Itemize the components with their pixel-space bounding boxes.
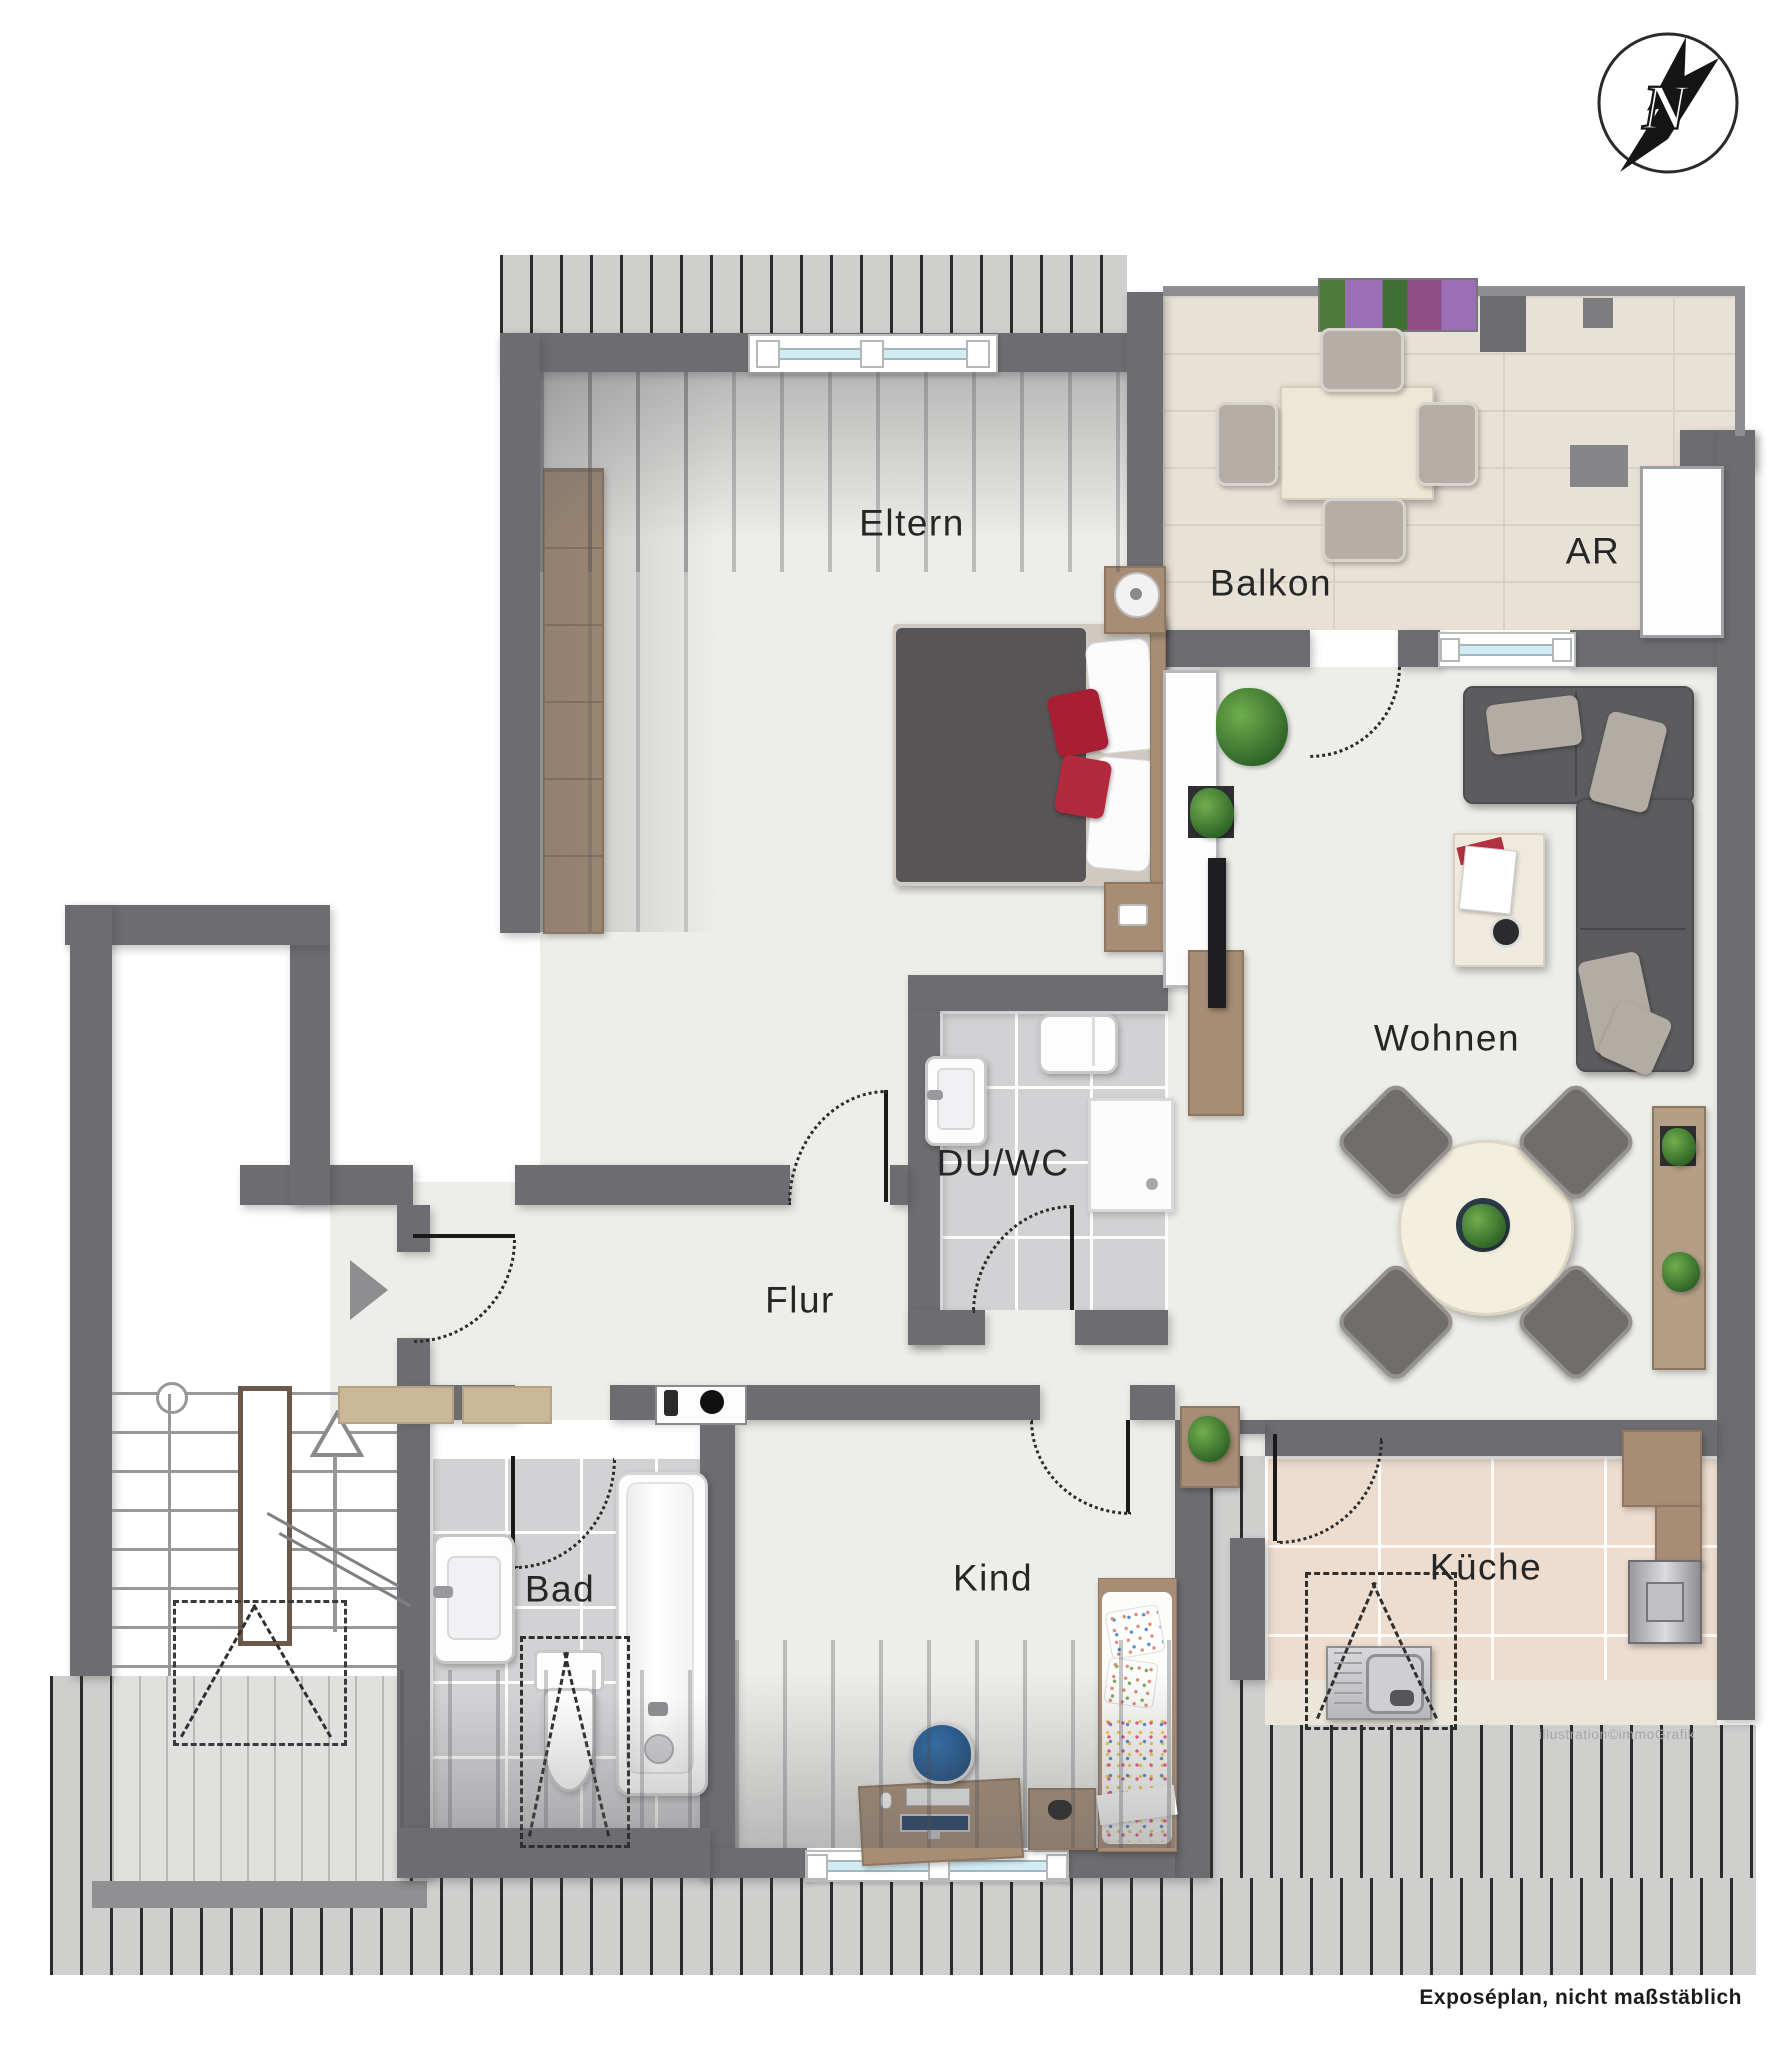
nightstand-phone [1118,904,1148,926]
wall-flur-top-b [515,1165,790,1205]
eltern-window-mullion-1 [756,340,780,368]
stairs-handrail-post [156,1382,188,1414]
bad-toilet-dashed-zone [520,1636,630,1848]
plan-disclaimer: Exposéplan, nicht maßstäblich [1419,1986,1742,2010]
coffee-table-cup [1490,916,1522,948]
label-wohnen: Wohnen [1374,1020,1520,1057]
balcony-pillar [1480,296,1526,352]
kind-nightstand-lamp [1048,1800,1072,1820]
wall-balcony-bottom-b [1398,630,1440,667]
wohnen-window-mullion-2 [1552,638,1572,662]
kind-desk-mouse [880,1792,892,1809]
passage-plant [1188,1416,1230,1462]
bed-red-pillow-2 [1053,754,1112,820]
balcony-flower-box [1318,278,1478,332]
wall-kind-right [1175,1420,1210,1878]
label-du-wc: DU/WC [937,1145,1070,1182]
kind-corner-fixture-bar [664,1390,678,1416]
bed-duvet [896,628,1086,882]
kueche-cabinet-upper [1622,1430,1702,1507]
wall-flur-bottom-c [1130,1385,1175,1420]
eltern-window-mullion-3 [966,340,990,368]
kind-window-mullion-3 [1046,1854,1068,1880]
sideboard-plant-2 [1662,1252,1700,1292]
duwc-sink-basin [937,1068,975,1130]
label-balkon: Balkon [1210,565,1332,602]
terrace-edge-band [92,1881,427,1908]
wall-left-stub [290,945,330,1205]
wall-kueche-left-lower [1230,1538,1265,1680]
wall-kind-bottom-right [1063,1848,1175,1878]
kueche-slope-dashed-zone [1305,1572,1457,1730]
wall-duwc-top [908,975,1168,1011]
bathtub-inner [626,1482,694,1774]
bathtub-tap [648,1702,668,1716]
duwc-toilet-tank-line [1092,1016,1095,1066]
compass-letter: N [1642,73,1691,143]
wall-flur-top-c [890,1165,908,1205]
kind-corner-fixture-knob [700,1390,724,1414]
label-ar: AR [1566,533,1620,570]
roof-hatch-top [500,255,1127,333]
balcony-railing-right [1735,286,1745,436]
duwc-sink-tap [927,1090,943,1100]
wall-kind-bottom-left [700,1848,807,1878]
balcony-planter-small [1583,298,1613,328]
north-arrow-icon: N [1593,28,1743,178]
wall-stairwell-left [70,905,112,1676]
label-bad: Bad [525,1571,595,1608]
dining-centerpiece-plant [1462,1204,1506,1248]
sofa-seam-2 [1580,928,1686,930]
coffee-table-magazine [1459,845,1517,914]
balcony-table [1280,386,1434,500]
sideboard-plant-1 [1662,1128,1696,1166]
kueche-cabinet-small [1655,1505,1702,1566]
wohnen-window-mullion-1 [1440,638,1460,662]
kind-chair [910,1722,974,1784]
eltern-wardrobe [543,468,604,934]
wall-duwc-bottom-a [908,1310,985,1345]
duwc-shower [1088,1098,1174,1212]
kind-window-mullion-1 [806,1854,828,1880]
roof-hatch-kitchen [1180,1725,1756,1878]
illustration-watermark: illustration©immoGrafik [1539,1726,1695,1742]
label-kueche: Küche [1430,1549,1542,1586]
floor-plan: N Eltern Balkon AR Wohnen DU/WC Flur Bad… [0,0,1778,2048]
bedside-lamp-center [1130,588,1142,600]
wall-duwc-bottom-b [1075,1310,1168,1345]
duwc-shower-drain [1146,1178,1158,1190]
label-eltern: Eltern [859,505,965,542]
stairs-handrail-line [168,1394,171,1676]
balcony-chair-bottom [1322,498,1406,562]
entrance-door-leaf [413,1234,515,1238]
ar-closet [1640,466,1724,638]
wall-eltern-left [500,333,540,933]
balcony-chair-top [1320,328,1404,392]
kid-bed-pillow-2 [1103,1657,1159,1710]
kind-desk-monitor-stand [928,1830,940,1839]
duwc-toilet [1038,1014,1118,1074]
balcony-chair-right [1416,402,1478,486]
bad-sink-tap [433,1586,453,1598]
entrance-arrow-icon [350,1260,388,1320]
kueche-stove-door [1646,1582,1684,1622]
flur-cabinet-2 [462,1386,552,1424]
eltern-window-mullion-2 [860,340,884,368]
tv-screen [1208,858,1226,1008]
wohnen-window-glazing [1448,644,1566,656]
wohnen-big-plant [1216,688,1288,766]
bathtub-drain [644,1734,674,1764]
kind-desk-keyboard [906,1788,970,1806]
bad-sink-basin [447,1556,501,1640]
flur-cabinet-1 [338,1386,454,1424]
balcony-chair-left [1216,402,1278,486]
balcony-planter-corner [1570,445,1628,487]
label-flur: Flur [765,1282,835,1319]
label-kind: Kind [953,1560,1033,1597]
mid-plant [1190,788,1234,838]
kid-bed-pillow-1 [1104,1604,1166,1661]
